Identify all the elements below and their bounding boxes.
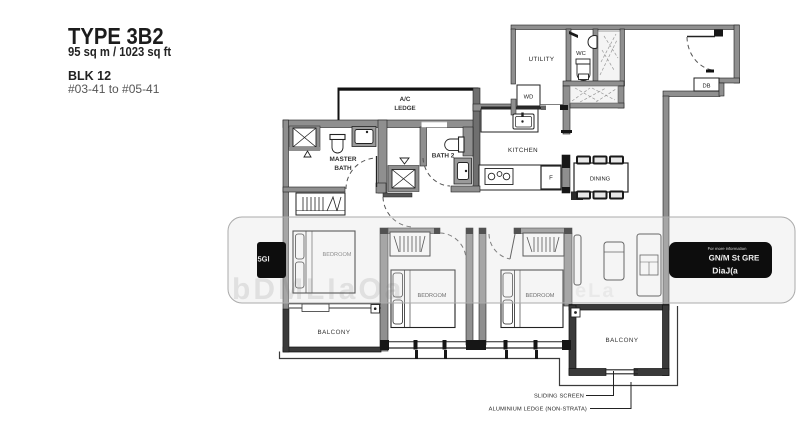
- svg-text:ALUMINIUM LEDGE (NON-STRATA): ALUMINIUM LEDGE (NON-STRATA): [489, 406, 587, 413]
- svg-text:GN/M St GRE: GN/M St GRE: [709, 254, 760, 263]
- svg-text:DINING: DINING: [590, 176, 611, 183]
- svg-text:BATH: BATH: [334, 165, 352, 172]
- svg-text:BALCONY: BALCONY: [317, 329, 350, 336]
- svg-text:MASTER: MASTER: [330, 156, 357, 163]
- svg-text:BALCONY: BALCONY: [605, 337, 638, 344]
- svg-text:bDMLIaOa: bDMLIaOa: [232, 273, 404, 306]
- svg-text:WC: WC: [576, 50, 586, 57]
- svg-text:For more information: For more information: [708, 246, 748, 251]
- svg-text:KITCHEN: KITCHEN: [508, 147, 538, 154]
- svg-text:WD: WD: [524, 95, 534, 101]
- svg-text:DiaJ(a: DiaJ(a: [712, 266, 738, 276]
- svg-text:SLIDING SCREEN: SLIDING SCREEN: [534, 394, 584, 400]
- svg-text:LEDGE: LEDGE: [394, 105, 415, 112]
- svg-text:F: F: [549, 175, 553, 182]
- svg-text:BATH 2: BATH 2: [432, 153, 455, 160]
- svg-text:eLa: eLa: [575, 280, 615, 302]
- svg-text:5Gl: 5Gl: [257, 255, 269, 264]
- svg-text:UTILITY: UTILITY: [529, 56, 555, 63]
- svg-text:DB: DB: [702, 84, 710, 90]
- svg-text:A/C: A/C: [400, 96, 411, 103]
